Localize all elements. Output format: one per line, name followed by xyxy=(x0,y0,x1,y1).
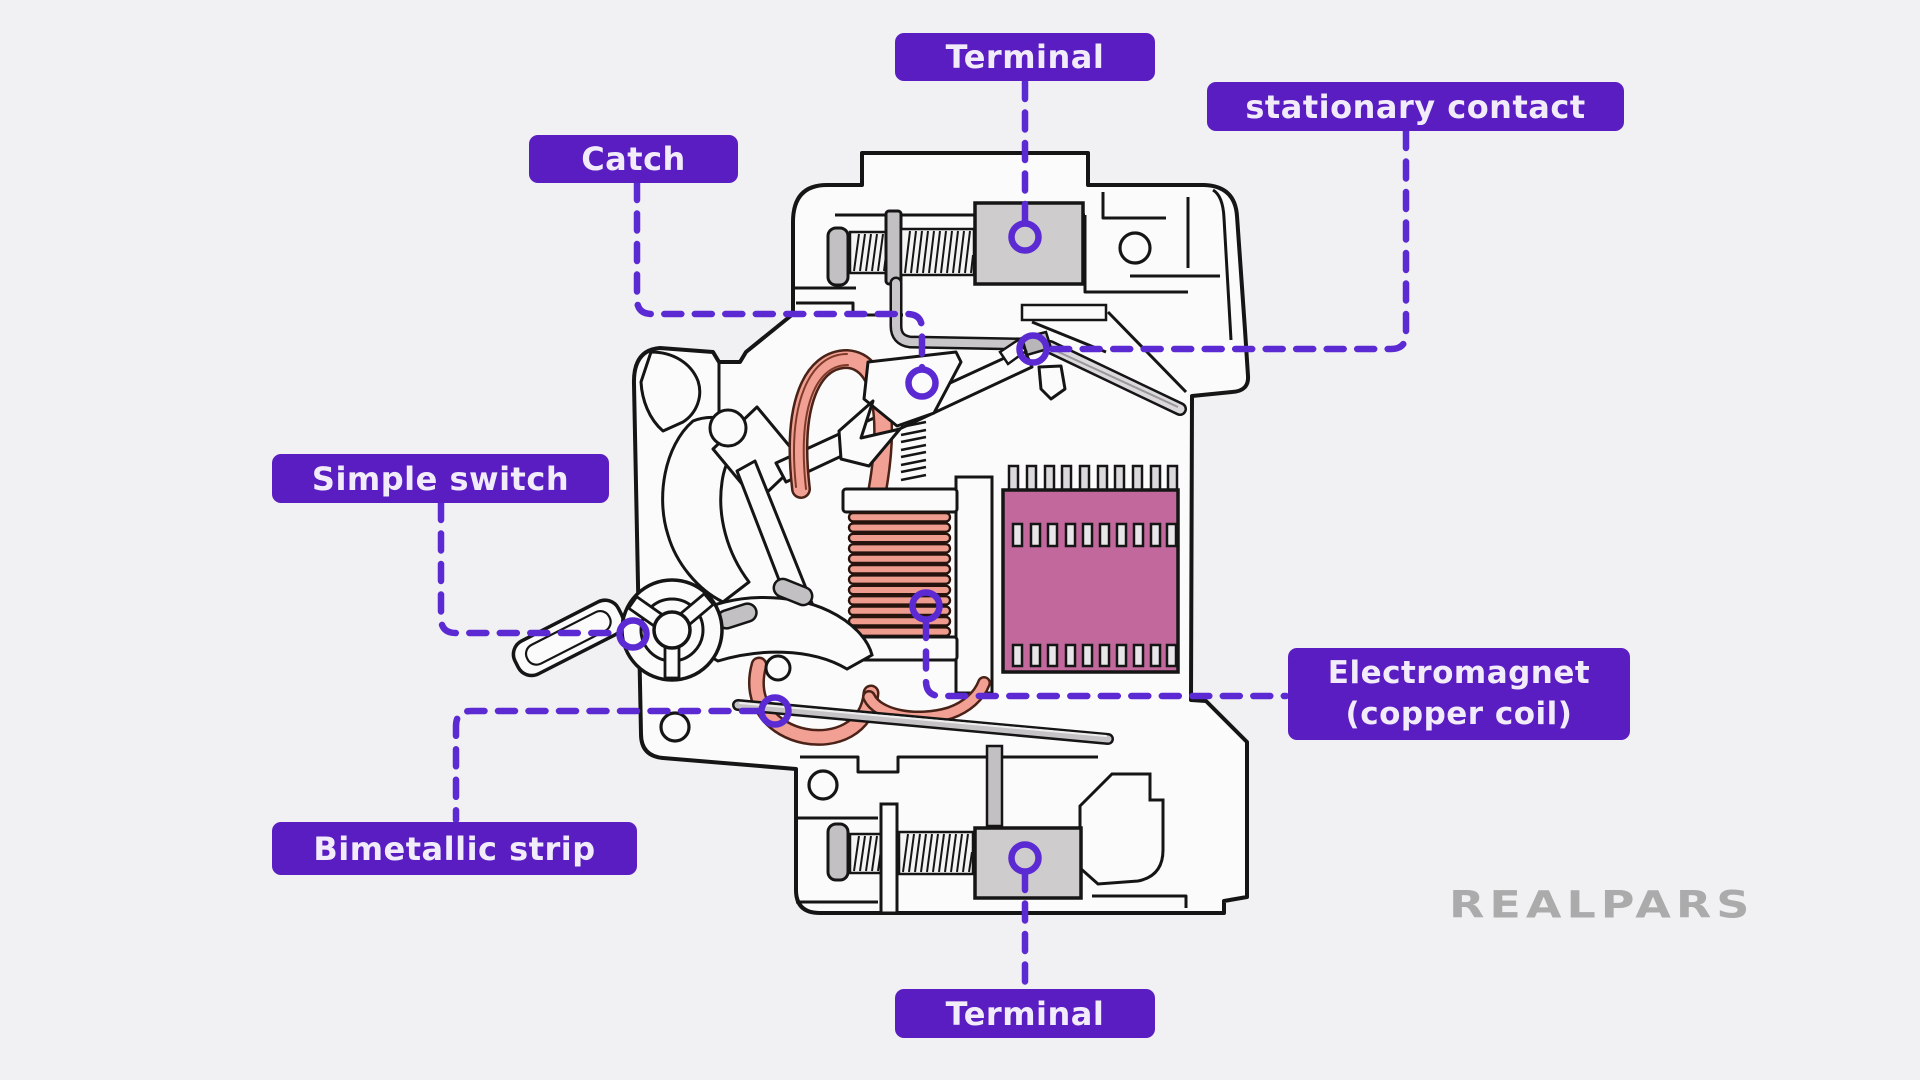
label-electromagnet-line1: Electromagnet xyxy=(1328,653,1590,694)
electromagnet-coil xyxy=(843,477,992,693)
mcb-cutaway-figure: Terminal stationary contact Catch Simple… xyxy=(0,0,1920,1080)
label-terminal-top: Terminal xyxy=(895,33,1155,81)
realpars-watermark: REALPARS xyxy=(1449,882,1809,923)
screw-collar-top xyxy=(886,211,901,284)
label-catch: Catch xyxy=(529,135,738,183)
conductor-bottom xyxy=(987,746,1002,826)
label-bimetallic-strip-text: Bimetallic strip xyxy=(313,829,595,869)
switch-toggle xyxy=(508,595,628,681)
coil-top-cap xyxy=(843,489,957,512)
pivot-hole xyxy=(710,410,746,446)
label-catch-text: Catch xyxy=(581,139,686,179)
label-stationary-contact: stationary contact xyxy=(1207,82,1624,131)
arc-chute xyxy=(1003,466,1178,672)
label-bimetallic-strip: Bimetallic strip xyxy=(272,822,637,875)
label-terminal-bottom-text: Terminal xyxy=(946,994,1105,1034)
label-terminal-top-text: Terminal xyxy=(946,37,1105,77)
housing-rib xyxy=(1022,305,1106,320)
label-stationary-contact-text: stationary contact xyxy=(1245,87,1585,127)
latch-pivot xyxy=(766,656,790,680)
label-electromagnet-line2: (copper coil) xyxy=(1346,694,1573,735)
label-simple-switch-text: Simple switch xyxy=(312,459,569,499)
switch-hub-center xyxy=(654,612,690,648)
label-electromagnet: Electromagnet (copper coil) xyxy=(1288,648,1630,740)
label-simple-switch: Simple switch xyxy=(272,454,609,503)
coil-yoke xyxy=(956,477,992,693)
terminal-block-top xyxy=(975,203,1083,284)
screw-collar-bottom xyxy=(881,804,897,913)
clamp-plate-top xyxy=(828,228,848,285)
clamp-plate-bottom xyxy=(828,824,848,880)
label-terminal-bottom: Terminal xyxy=(895,989,1155,1038)
